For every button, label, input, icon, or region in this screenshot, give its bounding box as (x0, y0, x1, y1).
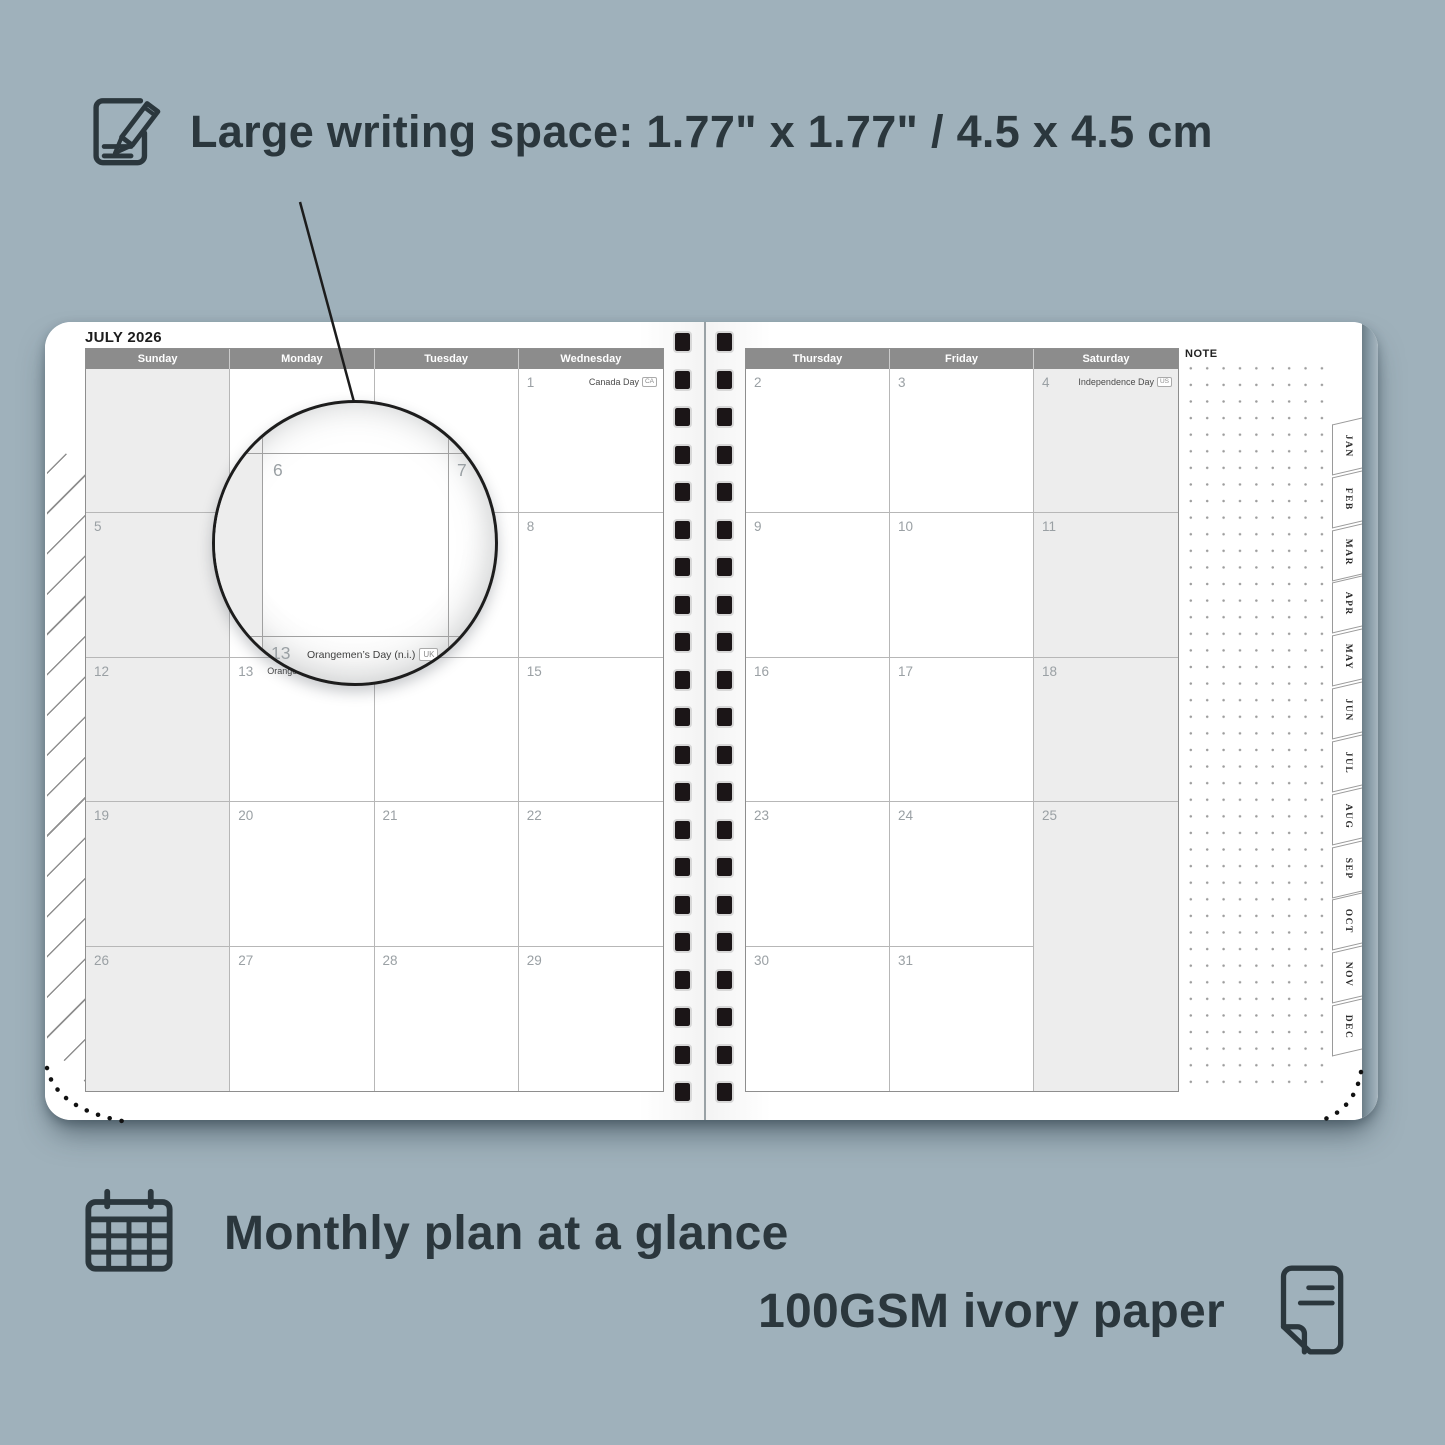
month-tab-label: OCT (1343, 909, 1353, 934)
calendar-cell (86, 369, 230, 513)
month-tab-oct: OCT (1332, 893, 1362, 951)
binding-hole (717, 746, 732, 764)
page-edge-strip (1362, 322, 1378, 1120)
month-tab-label: APR (1343, 593, 1353, 617)
day-number: 15 (527, 664, 542, 679)
day-number: 25 (1042, 808, 1057, 823)
binding-hole (675, 971, 690, 989)
month-tab-label: AUG (1343, 803, 1353, 829)
binding-hole (675, 521, 690, 539)
binding-hole (717, 521, 732, 539)
day-number: 20 (238, 808, 253, 823)
note-panel: NOTE (1183, 348, 1333, 1090)
calendar-cell: 16 (746, 658, 890, 802)
month-tab-label: NOV (1343, 962, 1353, 988)
binding-holes-left (675, 333, 690, 1101)
binding-hole (717, 446, 732, 464)
calendar-cell: 5 (86, 513, 230, 657)
binding-hole (675, 858, 690, 876)
binding-hole (675, 333, 690, 351)
month-tab-label: MAY (1343, 644, 1353, 670)
binding-hole (675, 1046, 690, 1064)
binding-hole (717, 1046, 732, 1064)
calendar-cell: 25 (1034, 802, 1178, 946)
holiday-text: Canada Day (589, 377, 639, 387)
calendar-cell: 4Independence DayUS (1034, 369, 1178, 513)
day-number: 12 (94, 664, 109, 679)
binding-hole (675, 933, 690, 951)
holiday-text: Independence Day (1078, 377, 1154, 387)
right-page: ThursdayFridaySaturday 234Independence D… (705, 322, 1362, 1120)
calendar-cell: 30 (746, 947, 890, 1091)
day-number: 10 (898, 519, 913, 534)
binding-hole (717, 1008, 732, 1026)
month-tab-label: FEB (1343, 488, 1353, 511)
note-dot-grid (1189, 356, 1333, 1090)
calendar-cell: 27 (230, 947, 374, 1091)
day-number: 19 (94, 808, 109, 823)
day-number: 5 (94, 519, 102, 534)
weekday-header-right: ThursdayFridaySaturday (746, 349, 1178, 369)
calendar-cell: 12 (86, 658, 230, 802)
month-tab-label: SEP (1343, 858, 1353, 880)
day-number: 11 (1042, 519, 1056, 534)
binding-hole (675, 446, 690, 464)
paper-sheet-icon (1270, 1264, 1350, 1356)
binding-hole (675, 783, 690, 801)
day-header: Saturday (1034, 349, 1178, 369)
monthly-plan-text: Monthly plan at a glance (224, 1206, 789, 1261)
magnified-grid-line (215, 636, 495, 637)
binding-hole (717, 558, 732, 576)
day-number: 18 (1042, 664, 1057, 679)
holiday-label: Independence DayUS (1078, 377, 1172, 387)
binding-hole (717, 821, 732, 839)
day-number: 28 (383, 953, 398, 968)
binding-holes-right (717, 333, 732, 1101)
magnified-weekend-column (215, 403, 262, 683)
binding-hole (675, 558, 690, 576)
binding-hole (675, 821, 690, 839)
page-divider (704, 322, 706, 1120)
month-tab-label: MAR (1343, 538, 1353, 565)
month-tab-dec: DEC (1332, 999, 1362, 1057)
calendar-cell: 2 (746, 369, 890, 513)
calendar-cell: 21 (375, 802, 519, 946)
magnified-day-6: 6 (273, 460, 283, 481)
day-number: 22 (527, 808, 542, 823)
binding-hole (675, 896, 690, 914)
binding-hole (717, 371, 732, 389)
day-number: 21 (383, 808, 398, 823)
day-header: Friday (890, 349, 1034, 369)
calendar-cell: 9 (746, 513, 890, 657)
day-header: Tuesday (375, 349, 519, 369)
month-tab-label: JUL (1343, 752, 1353, 774)
binding-hole (717, 933, 732, 951)
month-tab-nov: NOV (1332, 946, 1362, 1004)
magnified-grid-line (215, 453, 495, 454)
magnified-holiday: Orangemen’s Day (n.i.) UK (307, 648, 438, 661)
binding-hole (675, 708, 690, 726)
binding-hole (675, 371, 690, 389)
binding-hole (717, 971, 732, 989)
day-number: 17 (898, 664, 913, 679)
day-number: 29 (527, 953, 542, 968)
month-tab-jun: JUN (1332, 682, 1362, 740)
calendar-cell: 26 (86, 947, 230, 1091)
month-tab-label: JUN (1343, 699, 1353, 722)
day-number: 4 (1042, 375, 1050, 390)
calendar-cell: 23 (746, 802, 890, 946)
day-header: Monday (230, 349, 374, 369)
month-tab-feb: FEB (1332, 470, 1362, 528)
calendar-cell: 29 (519, 947, 663, 1091)
day-number: 27 (238, 953, 253, 968)
weekday-header-left: SundayMondayTuesdayWednesday (86, 349, 663, 369)
calendar-cell: 11 (1034, 513, 1178, 657)
calendar-cell: 31 (890, 947, 1034, 1091)
magnified-grid-line (448, 403, 449, 683)
day-header: Sunday (86, 349, 230, 369)
magnified-day-7: 7 (457, 460, 467, 481)
binding-hole (717, 783, 732, 801)
magnified-grid-line (262, 403, 263, 683)
month-tabs: JANFEBMARAPRMAYJUNJULAUGSEPOCTNOVDEC (1332, 420, 1362, 1054)
month-tab-aug: AUG (1332, 787, 1362, 845)
holiday-badge: UK (419, 648, 438, 661)
month-tab-jan: JAN (1332, 418, 1362, 476)
day-number: 31 (898, 953, 913, 968)
holiday-label: Canada DayCA (589, 377, 657, 387)
calendar-cell: 8 (519, 513, 663, 657)
binding-hole (675, 746, 690, 764)
calendar-cell: 10 (890, 513, 1034, 657)
month-tab-mar: MAR (1332, 523, 1362, 581)
binding-hole (675, 1008, 690, 1026)
day-number: 26 (94, 953, 109, 968)
calendar-cell (1034, 947, 1178, 1091)
day-number: 9 (754, 519, 762, 534)
calendar-cell: 28 (375, 947, 519, 1091)
binding-hole (675, 596, 690, 614)
calendar-cell: 18 (1034, 658, 1178, 802)
binding-hole (675, 483, 690, 501)
binding-hole (717, 1083, 732, 1101)
day-number: 30 (754, 953, 769, 968)
month-title: JULY 2026 (85, 329, 162, 346)
day-number: 2 (754, 375, 762, 390)
binding-hole (675, 671, 690, 689)
binding-hole (717, 896, 732, 914)
day-number: 1 (527, 375, 535, 390)
binding-hole (675, 408, 690, 426)
month-tab-label: JAN (1343, 435, 1353, 458)
day-number: 23 (754, 808, 769, 823)
calendar-grid-icon (84, 1188, 174, 1274)
month-tab-sep: SEP (1332, 840, 1362, 898)
binding-hole (717, 333, 732, 351)
calendar-cell: 22 (519, 802, 663, 946)
day-header: Wednesday (519, 349, 663, 369)
page-edge-hatch (47, 434, 85, 1082)
binding-hole (675, 1083, 690, 1101)
calendar-cell: 24 (890, 802, 1034, 946)
calendar-cell: 15 (519, 658, 663, 802)
binding-hole (717, 633, 732, 651)
product-image-canvas: Large writing space: 1.77" x 1.77" / 4.5… (0, 0, 1445, 1445)
day-header: Thursday (746, 349, 890, 369)
month-tab-jul: JUL (1332, 735, 1362, 793)
day-number: 3 (898, 375, 906, 390)
holiday-badge: CA (642, 377, 657, 387)
writing-space-text: Large writing space: 1.77" x 1.77" / 4.5… (190, 106, 1213, 158)
note-pencil-icon (86, 82, 168, 168)
paper-weight-text: 100GSM ivory paper (758, 1284, 1225, 1339)
day-number: 16 (754, 664, 769, 679)
day-number: 24 (898, 808, 913, 823)
calendar-grid-right: ThursdayFridaySaturday 234Independence D… (745, 348, 1179, 1092)
calendar-cell: 20 (230, 802, 374, 946)
binding-hole (717, 408, 732, 426)
binding-hole (717, 483, 732, 501)
calendar-cell: 17 (890, 658, 1034, 802)
calendar-cell: 1Canada DayCA (519, 369, 663, 513)
month-tab-apr: APR (1332, 576, 1362, 634)
day-number: 8 (527, 519, 535, 534)
calendar-cell: 19 (86, 802, 230, 946)
binding-hole (717, 596, 732, 614)
holiday-badge: US (1157, 377, 1172, 387)
binding-hole (717, 858, 732, 876)
calendar-cell: 3 (890, 369, 1034, 513)
binding-hole (717, 708, 732, 726)
binding-hole (675, 633, 690, 651)
binding-hole (717, 671, 732, 689)
month-tab-label: DEC (1343, 1015, 1353, 1040)
magnifier-circle: 6 7 13 Orangemen’s Day (n.i.) UK (212, 400, 498, 686)
month-tab-may: MAY (1332, 629, 1362, 687)
magnified-day-13: 13 (271, 643, 290, 664)
calendar-body-right: 234Independence DayUS9101116171823242530… (746, 369, 1178, 1091)
